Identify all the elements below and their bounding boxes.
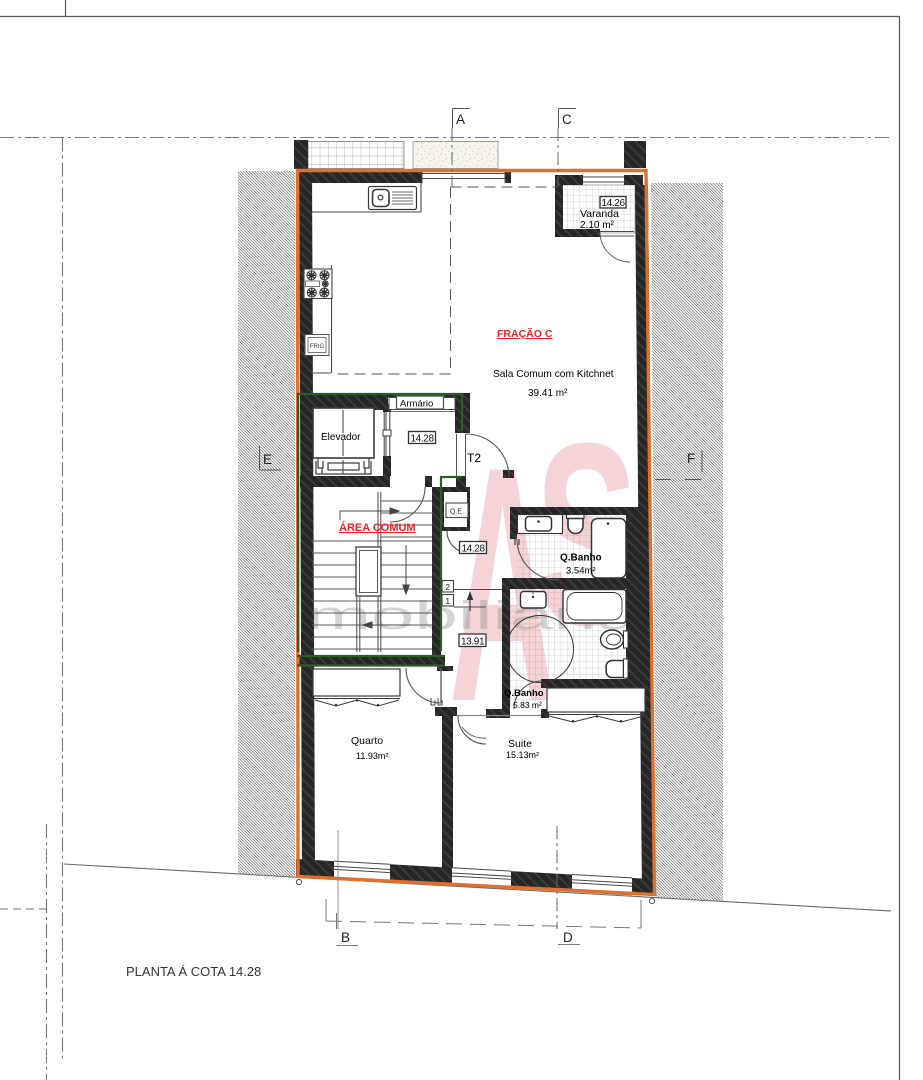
svg-text:15.13m²: 15.13m² xyxy=(506,750,539,760)
svg-text:3.54m²: 3.54m² xyxy=(566,566,596,577)
svg-text:ÁREA COMUM: ÁREA COMUM xyxy=(339,521,416,534)
svg-text:11.93m²: 11.93m² xyxy=(356,751,388,761)
svg-text:Q.E.: Q.E. xyxy=(450,509,464,516)
svg-text:14.28: 14.28 xyxy=(411,434,435,445)
svg-text:39.41 m²: 39.41 m² xyxy=(528,388,568,399)
svg-text:A: A xyxy=(456,112,465,127)
svg-text:2.10 m²: 2.10 m² xyxy=(580,220,615,231)
svg-text:14.26: 14.26 xyxy=(602,198,626,209)
svg-text:F: F xyxy=(687,451,695,466)
svg-text:2: 2 xyxy=(445,582,450,592)
svg-text:Quarto: Quarto xyxy=(351,735,383,747)
svg-text:E: E xyxy=(263,452,272,467)
svg-text:D: D xyxy=(563,930,573,945)
svg-text:Suite: Suite xyxy=(508,738,532,750)
svg-text:Elevador: Elevador xyxy=(321,432,361,443)
svg-text:14.28: 14.28 xyxy=(462,544,486,555)
svg-text:PLANTA Á COTA 14.28: PLANTA Á COTA 14.28 xyxy=(126,964,261,979)
svg-text:Varanda: Varanda xyxy=(580,208,619,220)
svg-text:Armário: Armário xyxy=(400,399,433,410)
svg-text:Sala Comum com Kitchnet: Sala Comum com Kitchnet xyxy=(493,369,614,380)
svg-text:5.83 m²: 5.83 m² xyxy=(513,700,542,710)
svg-text:FRAÇÃO C: FRAÇÃO C xyxy=(497,327,553,340)
svg-text:1: 1 xyxy=(445,596,450,606)
svg-text:13.91: 13.91 xyxy=(461,637,485,648)
svg-text:T2: T2 xyxy=(467,451,481,465)
svg-text:C: C xyxy=(562,112,572,127)
svg-text:Q.Banho: Q.Banho xyxy=(504,688,544,699)
svg-text:FRIG: FRIG xyxy=(310,344,325,350)
svg-text:Q.Banho: Q.Banho xyxy=(560,553,602,564)
svg-text:B: B xyxy=(341,930,350,945)
